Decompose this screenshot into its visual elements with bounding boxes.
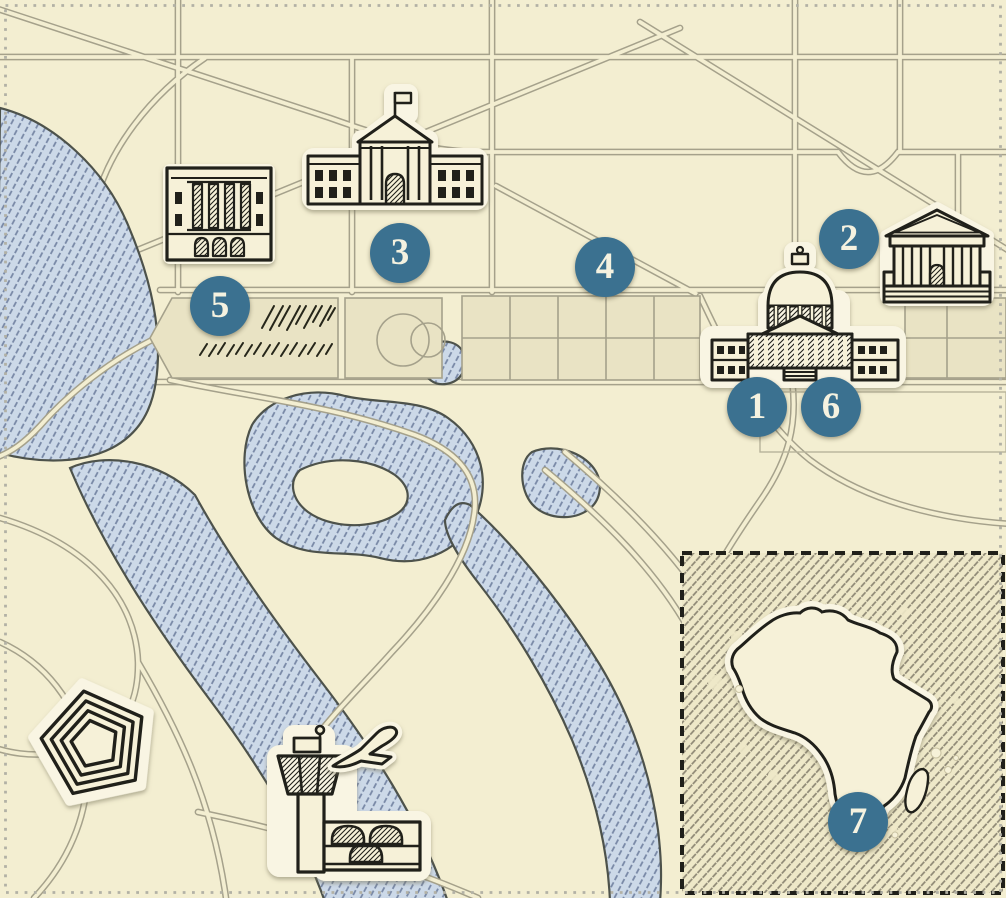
map-marker-6[interactable]: 6 bbox=[801, 377, 861, 437]
marker-number: 5 bbox=[211, 287, 230, 324]
map-marker-7[interactable]: 7 bbox=[828, 792, 888, 852]
illustrated-map: 1 2 3 4 5 6 7 bbox=[0, 0, 1006, 898]
map-marker-3[interactable]: 3 bbox=[370, 223, 430, 283]
map-marker-4[interactable]: 4 bbox=[575, 237, 635, 297]
supreme-court-icon bbox=[884, 208, 990, 302]
classical-federal-building-icon bbox=[163, 164, 275, 264]
map-marker-2[interactable]: 2 bbox=[819, 209, 879, 269]
map-marker-5[interactable]: 5 bbox=[190, 276, 250, 336]
marker-number: 3 bbox=[391, 234, 410, 271]
marker-number: 1 bbox=[748, 388, 767, 425]
marker-number: 7 bbox=[849, 803, 868, 840]
marker-number: 2 bbox=[840, 220, 859, 257]
mall-panel-ellipse bbox=[345, 298, 442, 378]
map-marker-1[interactable]: 1 bbox=[727, 377, 787, 437]
map-canvas bbox=[0, 0, 1006, 898]
marker-number: 6 bbox=[822, 388, 841, 425]
marker-number: 4 bbox=[596, 248, 615, 285]
